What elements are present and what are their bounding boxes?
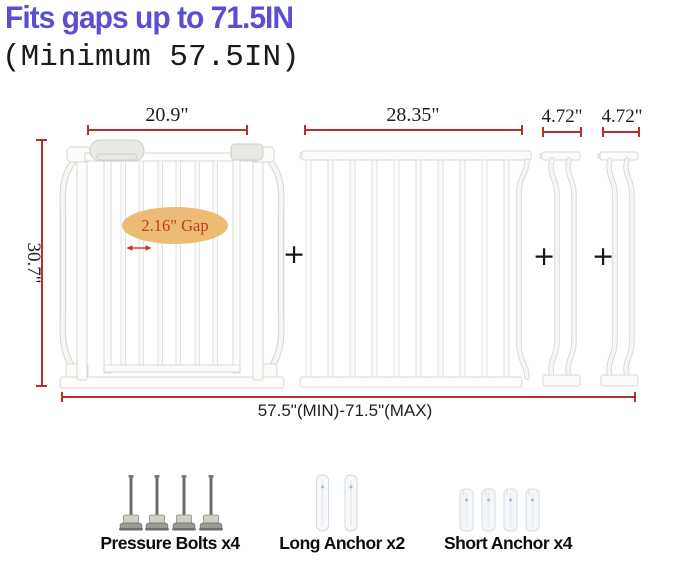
dim-tick — [521, 125, 523, 135]
dim-total-range: 57.5"(MIN)-71.5"(MAX) — [195, 401, 495, 421]
dim-small-ext-1-width: 4.72" — [532, 106, 592, 128]
main-gate-graphic — [57, 138, 287, 390]
short-anchor-icon — [458, 488, 542, 532]
dim-line-extension — [305, 129, 522, 131]
gap-arrow-icon — [126, 243, 152, 253]
gate-base-bar — [60, 377, 284, 388]
dim-tick — [602, 127, 604, 137]
dim-tick — [304, 125, 306, 135]
dim-tick — [542, 127, 544, 137]
dim-tick — [87, 125, 89, 135]
dim-tick — [634, 392, 636, 402]
dim-small-ext-2-width: 4.72" — [592, 106, 652, 128]
dim-line-total-range — [62, 396, 635, 398]
headline: Fits gaps up to 71.5IN — [5, 1, 293, 36]
dim-line-main-gate — [88, 129, 247, 131]
gate-latch — [231, 144, 263, 160]
dim-tick — [580, 127, 582, 137]
dim-line-small-ext-2 — [603, 131, 639, 133]
dim-tick — [638, 127, 640, 137]
dim-extension-width: 28.35" — [333, 104, 493, 127]
dim-tick — [36, 385, 47, 387]
dim-line-small-ext-1 — [543, 131, 581, 133]
pressure-bolts-icon — [117, 474, 227, 532]
long-anchor-icon — [315, 474, 361, 532]
small-extension-2-graphic — [598, 148, 640, 388]
gap-callout: 2.16" Gap — [122, 207, 228, 244]
dim-gate-height: 30.7" — [22, 240, 44, 286]
subheadline: (Minimum 57.5IN) — [2, 40, 300, 75]
gate-door-bottom-rail — [104, 365, 240, 372]
extension-panel-graphic — [300, 148, 533, 388]
dim-tick — [36, 139, 47, 141]
dim-tick — [246, 125, 248, 135]
short-anchor-label: Short Anchor x4 — [398, 533, 618, 554]
product-dimension-diagram: Fits gaps up to 71.5IN (Minimum 57.5IN) … — [0, 0, 679, 566]
small-extension-1-graphic — [540, 148, 582, 388]
dim-main-gate-width: 20.9" — [87, 104, 247, 127]
dim-tick — [61, 392, 63, 402]
